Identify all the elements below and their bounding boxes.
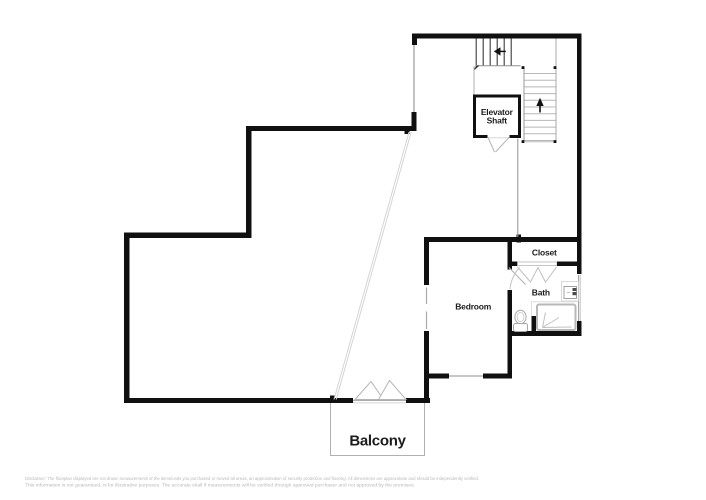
svg-text:Balcony: Balcony: [349, 433, 406, 450]
svg-text:Bath: Bath: [532, 287, 550, 297]
svg-text:This information is not guaran: This information is not guaranteed, is f…: [25, 482, 415, 487]
svg-text:Bedroom: Bedroom: [455, 302, 492, 312]
svg-text:Closet: Closet: [532, 248, 557, 258]
svg-text:Disclaimer: The floorplan dis: Disclaimer: The floorplan displayed are …: [25, 476, 479, 481]
svg-text:Shaft: Shaft: [487, 115, 508, 125]
